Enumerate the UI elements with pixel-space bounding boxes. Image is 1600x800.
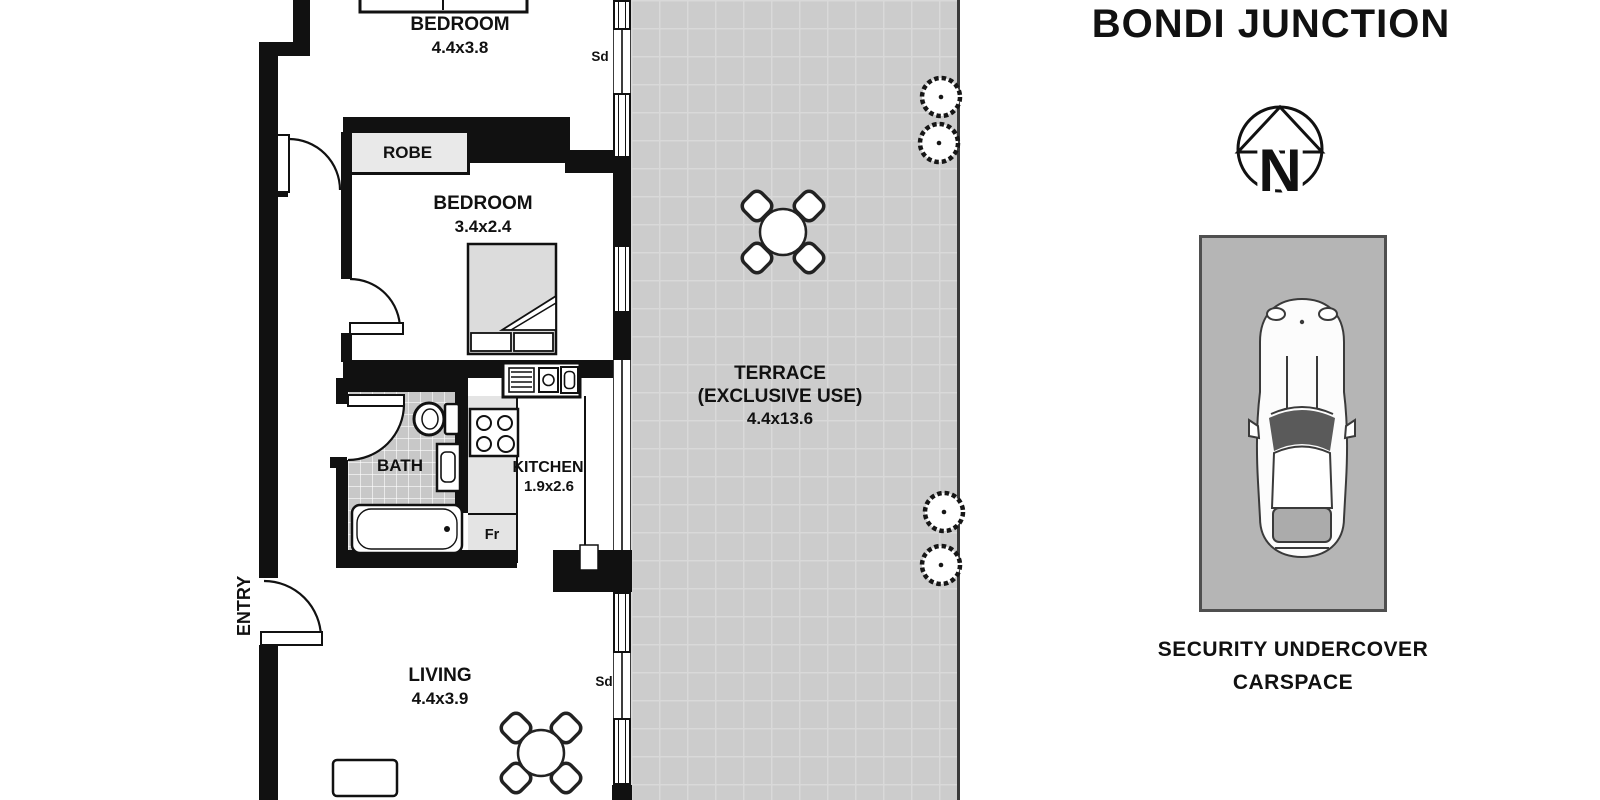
terrace-dims: 4.4x13.6 (670, 410, 890, 429)
bedroom2-dims: 3.4x2.4 (403, 218, 563, 237)
kitchen-name: KITCHEN (488, 459, 608, 477)
carspace-caption-line2: CARSPACE (1113, 671, 1473, 694)
window-segment (613, 0, 631, 30)
living-dims: 4.4x3.9 (360, 690, 520, 709)
fridge-label: Fr (472, 528, 512, 544)
sliding-door-label-bottom: Sd (590, 675, 618, 690)
bed-icon (468, 244, 556, 354)
living-name: LIVING (360, 666, 520, 687)
cabinet-icon (333, 760, 397, 796)
wall-segment (274, 185, 288, 197)
robe-closet: ROBE (345, 130, 470, 175)
floorplan-page: ROBE (0, 0, 1600, 800)
wall-segment (348, 378, 463, 392)
carspace-pad (1199, 235, 1387, 612)
robe-label: ROBE (383, 143, 432, 163)
wall-segment (455, 378, 468, 513)
north-compass-icon: N (1238, 107, 1322, 204)
sliding-door-track (613, 30, 631, 93)
compass-n-label: N (1258, 137, 1301, 204)
door-entry (261, 581, 322, 645)
carspace-caption-line1: SECURITY UNDERCOVER (1113, 638, 1473, 661)
wall-segment (336, 550, 517, 568)
terrace-subtitle: (EXCLUSIVE USE) (670, 387, 890, 408)
wall-segment (553, 550, 632, 592)
bedroom2-name: BEDROOM (403, 194, 563, 215)
terrace-name: TERRACE (670, 364, 890, 385)
wall-segment (259, 645, 278, 800)
wall-segment (612, 785, 632, 800)
bath-name: BATH (350, 457, 450, 476)
wall-segment (330, 457, 347, 468)
entry-label: ENTRY (235, 551, 255, 661)
bedroom1-name: BEDROOM (380, 15, 540, 36)
sliding-door-label-top: Sd (586, 50, 614, 65)
door-bedroom2 (350, 279, 403, 334)
bedroom1-dims: 4.4x3.8 (380, 39, 540, 58)
window-segment (613, 718, 631, 785)
bed-icon (360, 0, 527, 12)
kitchen-dims: 1.9x2.6 (489, 479, 609, 496)
wall-segment (341, 333, 352, 362)
wall-segment (343, 360, 613, 378)
window-segment (613, 93, 631, 158)
door-bedroom1 (277, 135, 340, 192)
wall-segment (336, 378, 348, 404)
wall-segment (613, 158, 631, 245)
window-segment (613, 592, 631, 653)
wall-segment (613, 313, 631, 360)
page-title: BONDI JUNCTION (1061, 2, 1481, 46)
wall-segment (470, 117, 570, 163)
sliding-door-track (613, 360, 631, 550)
wall-segment (259, 50, 278, 578)
wall-segment (341, 132, 352, 279)
dining-set-icon (498, 710, 583, 795)
window-segment (613, 245, 631, 313)
